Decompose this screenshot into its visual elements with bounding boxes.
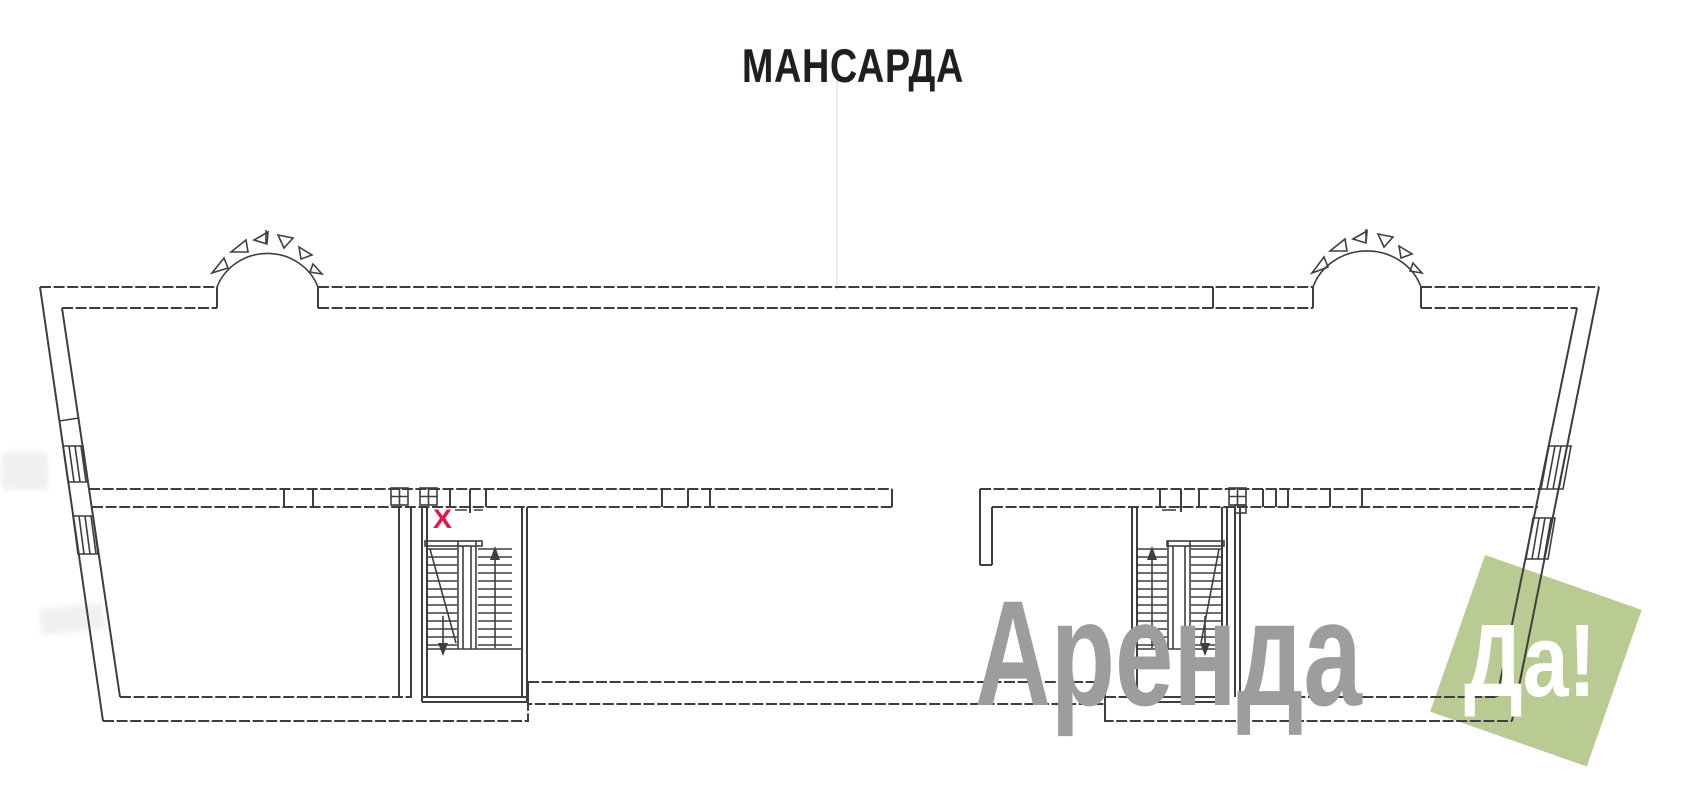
watermark-brand-text: Аренда [975, 584, 1362, 722]
window-left-wall-upper [63, 446, 88, 482]
red-x-marker: X [433, 506, 452, 533]
dormer-arch-left [212, 230, 322, 287]
floor-plan-drawing [0, 0, 1697, 800]
dormer-arch-right [1312, 229, 1422, 287]
top-wall [40, 287, 1599, 308]
staircase-left [422, 507, 527, 702]
corridor-wall-right-segment [980, 488, 1542, 565]
left-wall [40, 287, 120, 721]
corridor-wall-left-segment [89, 488, 892, 513]
scanned-floor-plan-page: МАНСАРДА X Аренда Да! [0, 0, 1697, 800]
watermark-badge-text: Да! [1464, 615, 1596, 708]
page-title: МАНСАРДА [742, 42, 964, 89]
window-right-wall-upper [1541, 446, 1571, 489]
